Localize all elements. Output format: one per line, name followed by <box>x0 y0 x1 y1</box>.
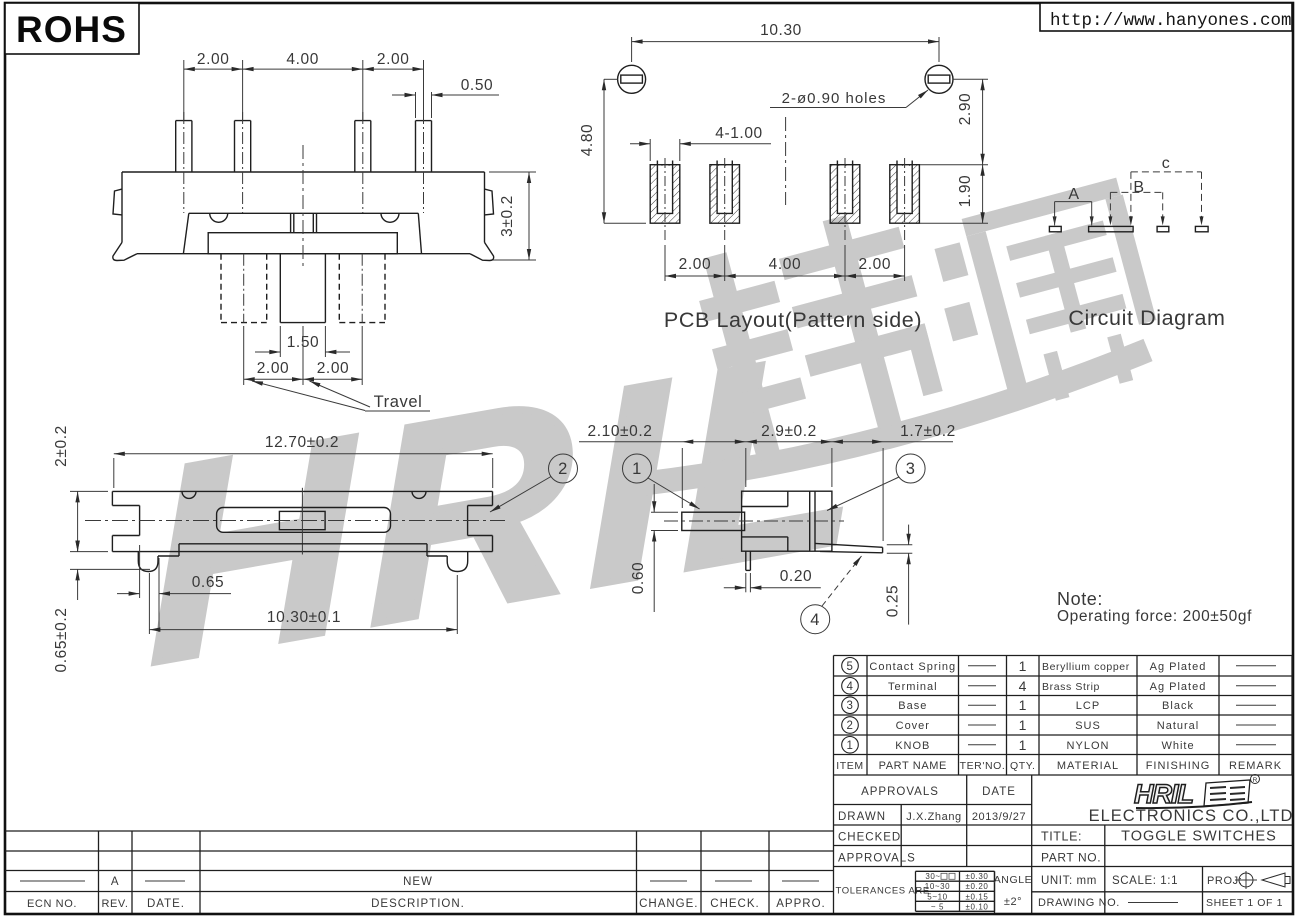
svg-text:SCALE: 1:1: SCALE: 1:1 <box>1112 875 1178 887</box>
svg-text:10.30: 10.30 <box>760 22 802 39</box>
svg-text:Cover: Cover <box>896 720 930 732</box>
svg-text:APPROVALS: APPROVALS <box>861 786 939 798</box>
svg-text:A: A <box>1068 186 1079 203</box>
svg-text:NYLON: NYLON <box>1067 740 1110 752</box>
svg-text:5~10: 5~10 <box>927 892 947 901</box>
svg-text:±2°: ±2° <box>1004 896 1022 908</box>
svg-text:R: R <box>1253 777 1258 784</box>
svg-text:NEW: NEW <box>403 876 433 888</box>
svg-text:A: A <box>111 876 119 888</box>
svg-text:Operating force: 200±50gf: Operating force: 200±50gf <box>1057 608 1252 625</box>
svg-text:Natural: Natural <box>1157 720 1199 732</box>
svg-text:2.00: 2.00 <box>317 360 350 377</box>
svg-text:CHANGE.: CHANGE. <box>639 898 698 910</box>
svg-text:REV.: REV. <box>101 898 128 910</box>
svg-text:5: 5 <box>847 661 854 673</box>
svg-text:3±0.2: 3±0.2 <box>499 195 516 237</box>
svg-text:±0.15: ±0.15 <box>966 892 989 901</box>
svg-text:Ag Plated: Ag Plated <box>1150 661 1207 673</box>
svg-text:Note:: Note: <box>1057 589 1103 609</box>
svg-text:2.9±0.2: 2.9±0.2 <box>761 423 817 440</box>
svg-text:1: 1 <box>632 460 642 478</box>
svg-text:1.90: 1.90 <box>957 175 974 208</box>
svg-text:Black: Black <box>1162 700 1194 712</box>
svg-text:FINISHING: FINISHING <box>1146 760 1211 772</box>
svg-text:2.00: 2.00 <box>197 51 230 68</box>
svg-text:±0.20: ±0.20 <box>966 882 989 891</box>
svg-text:1.7±0.2: 1.7±0.2 <box>900 423 956 440</box>
svg-text:1: 1 <box>1019 697 1027 713</box>
svg-text:Brass Strip: Brass Strip <box>1042 681 1100 693</box>
svg-text:Ag Plated: Ag Plated <box>1150 681 1207 693</box>
svg-text:0.25: 0.25 <box>885 585 902 618</box>
svg-text:3: 3 <box>847 700 854 712</box>
svg-text:Terminal: Terminal <box>888 681 938 693</box>
svg-text:APPRO.: APPRO. <box>776 898 825 910</box>
svg-text:ANGLE: ANGLE <box>994 874 1033 886</box>
svg-text:±0.30: ±0.30 <box>966 872 989 881</box>
svg-text:ELECTRONICS CO.,LTD: ELECTRONICS CO.,LTD <box>1089 807 1294 825</box>
svg-text:DATE.: DATE. <box>147 898 185 910</box>
svg-text:1: 1 <box>1019 717 1027 733</box>
svg-text:REMARK: REMARK <box>1229 760 1282 772</box>
svg-text:c: c <box>1162 155 1171 172</box>
svg-text:0.50: 0.50 <box>461 77 494 94</box>
svg-text:TITLE:: TITLE: <box>1041 830 1082 844</box>
svg-text:4: 4 <box>847 681 854 693</box>
svg-text:2013/9/27: 2013/9/27 <box>972 811 1026 823</box>
svg-text:Contact Spring: Contact Spring <box>869 661 956 673</box>
svg-text:2.00: 2.00 <box>257 360 290 377</box>
svg-text:~ 5: ~ 5 <box>931 902 944 911</box>
svg-text:B: B <box>1133 179 1144 196</box>
svg-text:UNIT: mm: UNIT: mm <box>1041 875 1097 887</box>
svg-text:4-1.00: 4-1.00 <box>715 125 763 142</box>
svg-text:TOGGLE SWITCHES: TOGGLE SWITCHES <box>1121 829 1277 845</box>
svg-text:QTY.: QTY. <box>1010 760 1036 772</box>
svg-text:2.00: 2.00 <box>679 256 712 273</box>
svg-text:ECN NO.: ECN NO. <box>27 898 77 910</box>
svg-text:ROHS: ROHS <box>16 9 127 50</box>
svg-text:4.80: 4.80 <box>579 124 596 157</box>
svg-text:MATERIAL: MATERIAL <box>1057 760 1119 772</box>
svg-text:TER'NO.: TER'NO. <box>960 760 1006 772</box>
svg-text:PCB Layout(Pattern side): PCB Layout(Pattern side) <box>664 308 922 332</box>
svg-text:10.30±0.1: 10.30±0.1 <box>267 609 341 626</box>
svg-text:DESCRIPTION.: DESCRIPTION. <box>371 898 465 910</box>
svg-text:1: 1 <box>847 740 854 752</box>
svg-text:http://www.hanyones.com: http://www.hanyones.com <box>1050 11 1292 31</box>
svg-text:KNOB: KNOB <box>895 740 930 752</box>
svg-text:4.00: 4.00 <box>286 51 319 68</box>
svg-text:DRAWN: DRAWN <box>838 811 886 823</box>
svg-text:2.10±0.2: 2.10±0.2 <box>587 423 652 440</box>
svg-text:Travel: Travel <box>374 393 423 411</box>
svg-text:Beryllium copper: Beryllium copper <box>1042 661 1130 673</box>
svg-text:4: 4 <box>810 611 820 629</box>
svg-text:0.60: 0.60 <box>630 562 647 595</box>
svg-text:White: White <box>1161 740 1194 752</box>
svg-text:1: 1 <box>1019 737 1027 753</box>
svg-text:PROJ:: PROJ: <box>1207 875 1242 887</box>
svg-text:0.20: 0.20 <box>780 568 813 585</box>
svg-text:±0.10: ±0.10 <box>966 902 989 911</box>
svg-text:2±0.2: 2±0.2 <box>53 425 70 467</box>
svg-text:PART NO.: PART NO. <box>1041 851 1101 865</box>
svg-text:2: 2 <box>847 720 854 732</box>
svg-text:Circuit Diagram: Circuit Diagram <box>1068 306 1225 330</box>
svg-text:0.65±0.2: 0.65±0.2 <box>53 607 70 672</box>
svg-text:30~: 30~ <box>925 872 940 881</box>
svg-text:1: 1 <box>1019 658 1027 674</box>
svg-text:DRAWING NO.: DRAWING NO. <box>1038 897 1120 909</box>
svg-text:12.70±0.2: 12.70±0.2 <box>265 434 339 451</box>
svg-text:DATE: DATE <box>982 786 1016 798</box>
svg-text:CHECKED: CHECKED <box>838 832 901 844</box>
svg-text:2.00: 2.00 <box>377 51 410 68</box>
svg-text:2.00: 2.00 <box>859 256 892 273</box>
svg-text:SUS: SUS <box>1075 720 1101 732</box>
svg-text:0.65: 0.65 <box>192 574 225 591</box>
svg-text:3: 3 <box>906 460 916 478</box>
svg-text:LCP: LCP <box>1076 700 1100 712</box>
svg-text:J.X.Zhang: J.X.Zhang <box>906 811 962 823</box>
svg-text:Base: Base <box>898 700 927 712</box>
svg-text:2: 2 <box>558 460 568 478</box>
svg-text:PART NAME: PART NAME <box>879 760 947 772</box>
svg-text:4: 4 <box>1019 678 1027 694</box>
svg-text:2.90: 2.90 <box>957 93 974 126</box>
svg-text:CHECK.: CHECK. <box>710 898 759 910</box>
svg-text:2-ø0.90 holes: 2-ø0.90 holes <box>782 90 887 107</box>
svg-text:ITEM: ITEM <box>836 760 863 772</box>
svg-text:APPROVALS: APPROVALS <box>838 853 916 865</box>
svg-text:4.00: 4.00 <box>769 256 802 273</box>
svg-text:SHEET 1 OF 1: SHEET 1 OF 1 <box>1206 897 1283 909</box>
svg-text:10~30: 10~30 <box>925 882 950 891</box>
svg-text:HRIL: HRIL <box>1134 779 1193 809</box>
